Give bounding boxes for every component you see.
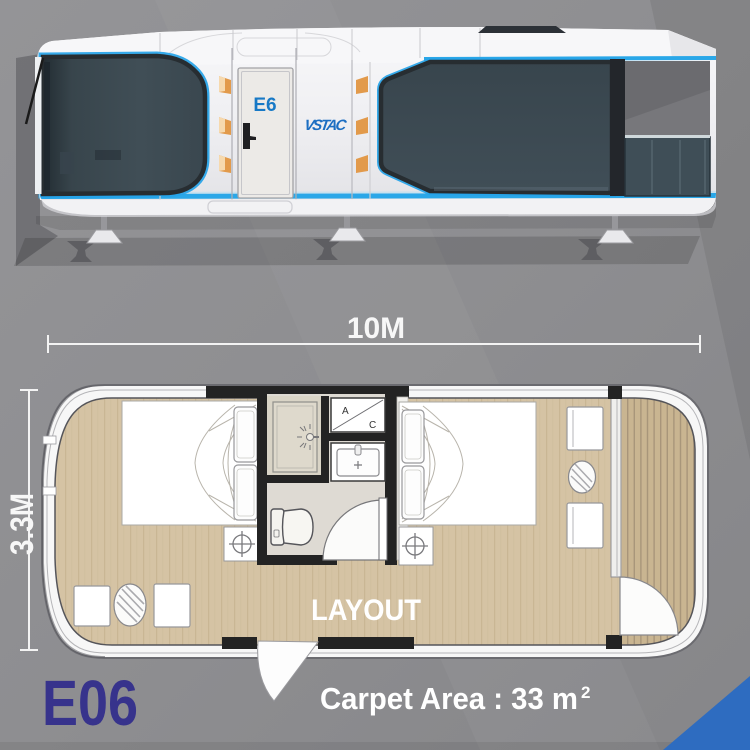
svg-text:10M: 10M xyxy=(347,312,405,345)
svg-text:LAYOUT: LAYOUT xyxy=(311,594,421,627)
svg-text:A: A xyxy=(342,406,349,417)
svg-text:E6: E6 xyxy=(253,95,276,116)
svg-text:3.3M: 3.3M xyxy=(4,493,40,555)
svg-text:2: 2 xyxy=(581,683,590,702)
svg-text:C: C xyxy=(369,420,376,431)
svg-text:Carpet Area : 33 m: Carpet Area : 33 m xyxy=(320,681,578,716)
svg-text:VSTAC: VSTAC xyxy=(303,117,348,134)
svg-text:E06: E06 xyxy=(42,667,138,739)
